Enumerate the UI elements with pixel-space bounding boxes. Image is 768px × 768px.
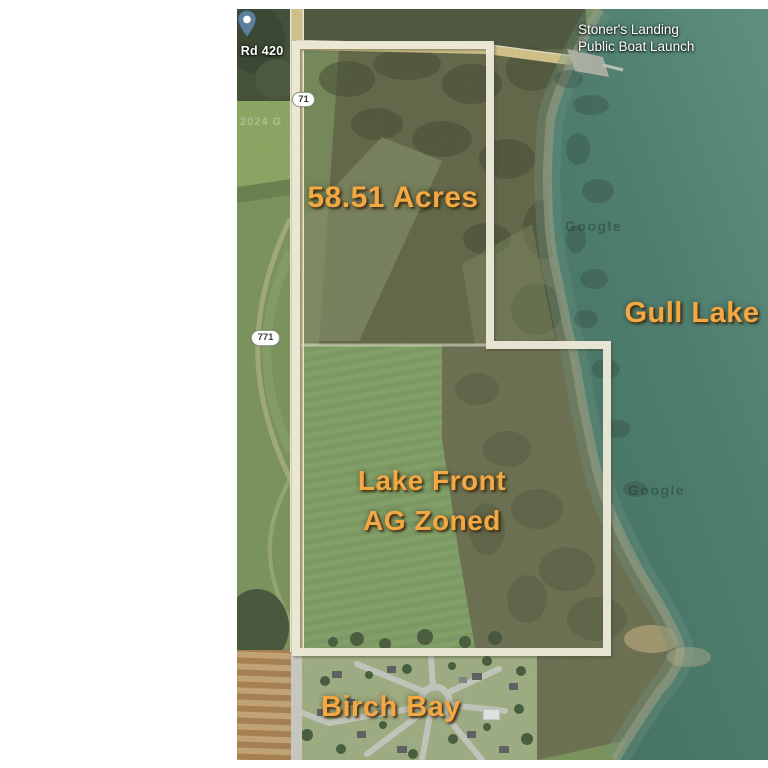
satellite-map: p Rd 420 71 771 Stoner's Landing Public … (237, 9, 768, 760)
satellite-imagery (237, 9, 768, 760)
route-shield-71: 71 (292, 92, 315, 107)
zoning-label-line1: Lake Front (337, 461, 527, 501)
boat-launch-pin-icon (237, 9, 257, 39)
zoning-label-line2: AG Zoned (337, 501, 527, 541)
acreage-label: 58.51 Acres (303, 181, 483, 215)
road-label-rd420: p Rd 420 (237, 44, 284, 58)
boat-launch-label-line1: Stoner's Landing (578, 21, 694, 38)
route-shield-771: 771 (251, 330, 280, 346)
lake-name-label: Gull Lake (612, 297, 768, 330)
subdivision-label: Birch Bay (301, 691, 481, 724)
google-watermark-upper: Google (565, 218, 622, 234)
boat-launch-label: Stoner's Landing Public Boat Launch (578, 21, 694, 55)
listing-image-page: p Rd 420 71 771 Stoner's Landing Public … (0, 0, 768, 768)
zoning-label: Lake Front AG Zoned (337, 461, 527, 541)
boat-launch-label-line2: Public Boat Launch (578, 38, 694, 55)
google-watermark-lower: Google (628, 482, 685, 498)
imagery-year-watermark: 2024 G (240, 116, 282, 128)
